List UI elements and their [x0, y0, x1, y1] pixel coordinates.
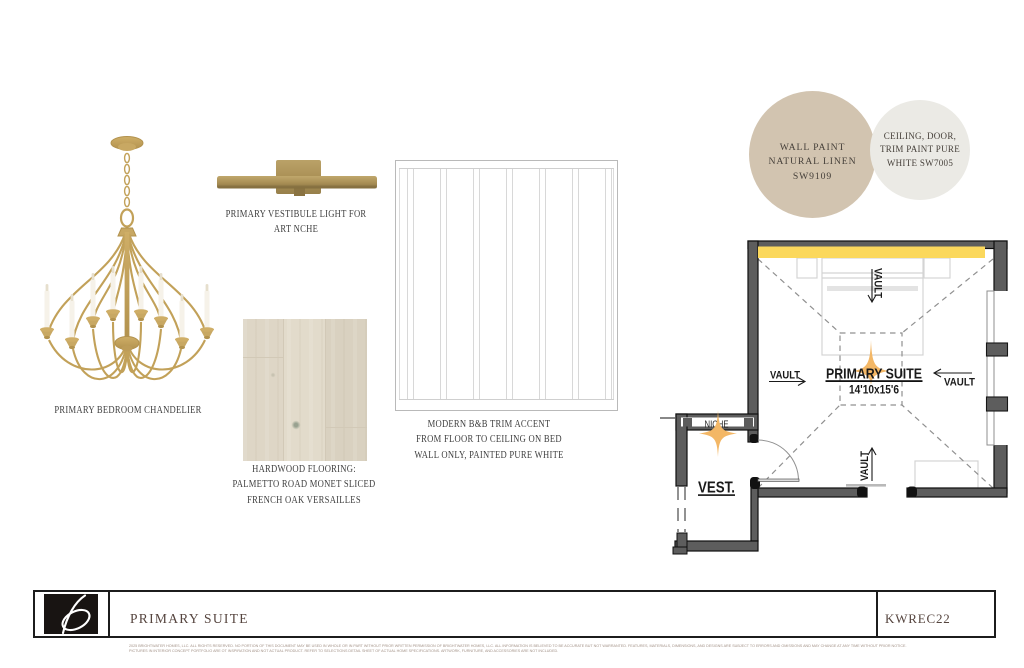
svg-text:VAULT: VAULT	[872, 268, 884, 298]
svg-text:VEST.: VEST.	[698, 479, 735, 496]
svg-text:14'10x15'6: 14'10x15'6	[849, 383, 899, 397]
svg-text:VAULT: VAULT	[859, 451, 871, 481]
svg-text:VAULT: VAULT	[944, 377, 975, 389]
svg-text:VAULT: VAULT	[770, 370, 800, 382]
svg-text:PRIMARY SUITE: PRIMARY SUITE	[826, 365, 922, 382]
